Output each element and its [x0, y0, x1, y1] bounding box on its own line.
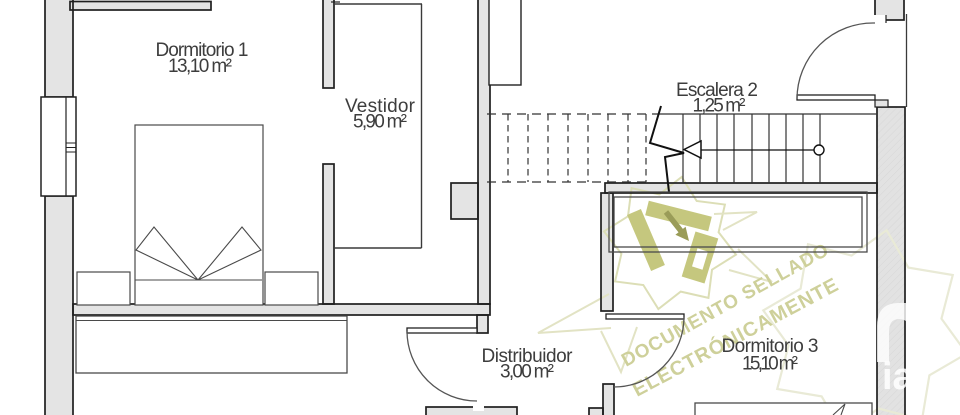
svg-text:ia: ia — [882, 356, 915, 398]
svg-text:3,00 m²: 3,00 m² — [500, 362, 554, 383]
svg-text:15,10 m²: 15,10 m² — [742, 354, 798, 375]
svg-text:13,10 m²: 13,10 m² — [168, 56, 232, 77]
svg-text:5,90 m²: 5,90 m² — [353, 112, 407, 133]
svg-text:1,25 m²: 1,25 m² — [693, 96, 746, 117]
